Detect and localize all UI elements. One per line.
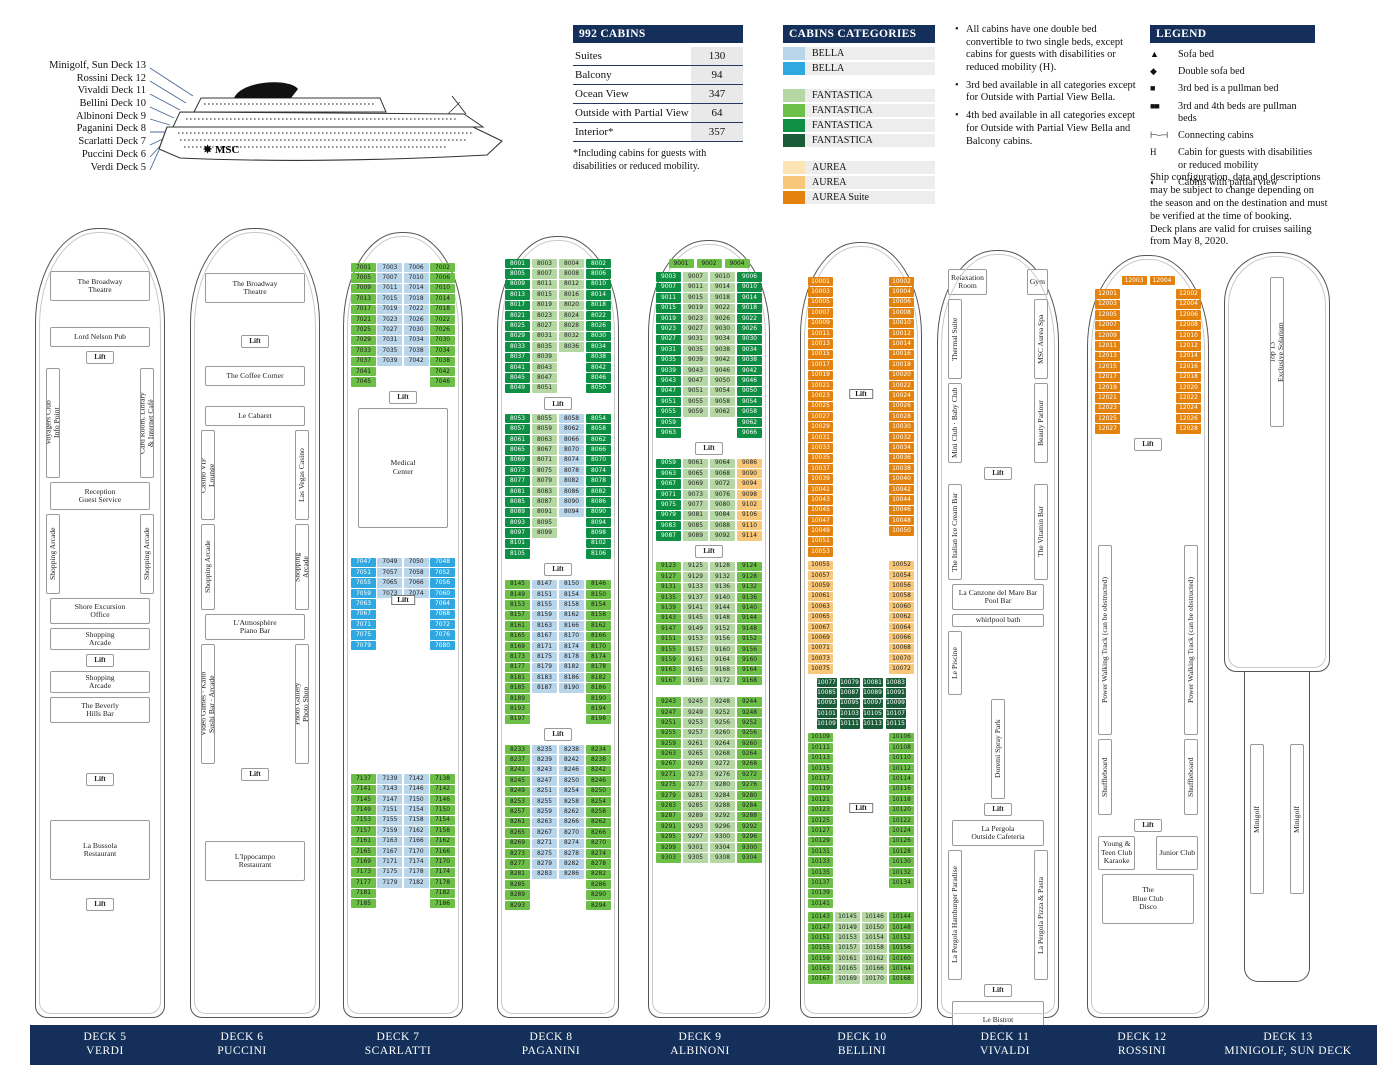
- cabin-cell: 9300: [710, 833, 735, 842]
- cabin-cell: 8057: [505, 424, 530, 433]
- cabin-cell: 9288: [737, 812, 762, 821]
- cabin-cell: 10122: [889, 816, 914, 825]
- cabin-cell: 8270: [559, 828, 584, 837]
- category-color-swatch: [783, 62, 805, 75]
- venue-pair: Mini Club · Baby ClubBeauty Parlour: [948, 383, 1048, 463]
- cabin-cell: 7146: [430, 795, 455, 804]
- cabin-cell: 8194: [586, 704, 611, 713]
- cabin-cell: 7171: [377, 857, 402, 866]
- footer-deck-name: VIVALDI: [980, 1045, 1030, 1059]
- cabin-cell: 12018: [1176, 373, 1201, 382]
- cabin-cell: 9281: [683, 791, 708, 800]
- cabin-block: 9243924792519255925992639267927192759279…: [656, 697, 762, 862]
- cabin-cell: 10139: [808, 889, 833, 898]
- cabin-cell: 10145: [835, 912, 860, 921]
- cabin-cell: 9264: [710, 739, 735, 748]
- cabin-cell: 9050: [737, 387, 762, 396]
- cabin-cell: 10110: [889, 754, 914, 763]
- cabin-cell: 12009: [1095, 331, 1120, 340]
- cabin-cell: 9249: [683, 708, 708, 717]
- cabin-column: 8238824282468250825482588262826682708274…: [559, 745, 584, 910]
- cabin-cell: 9102: [737, 500, 762, 509]
- cabin-cell: 7071: [351, 620, 376, 629]
- cabin-column: 8055805980638067807180758079808380878091…: [532, 414, 557, 558]
- cabin-cell: 10028: [889, 412, 914, 421]
- cabin-cell: 7170: [404, 847, 429, 856]
- cabin-cell: 8147: [532, 580, 557, 589]
- cabin-cell: 10058: [889, 592, 914, 601]
- cabin-cell: 9303: [656, 853, 681, 862]
- cabin-cell: 9291: [656, 822, 681, 831]
- cabin-cell: 10097: [863, 699, 883, 708]
- lift-label: Lift: [695, 442, 723, 455]
- cabin-cell: 7027: [377, 325, 402, 334]
- category-color-swatch: [783, 104, 805, 117]
- lift-label: Lift: [241, 768, 269, 781]
- cabin-cell: 7037: [351, 357, 376, 366]
- cabin-cell: 7030: [430, 336, 455, 345]
- cabin-cell: 8198: [586, 715, 611, 724]
- cabin-cell: 7179: [377, 878, 402, 887]
- ship-hull-outline: Top 13 Exclusive Solarium: [1224, 252, 1330, 672]
- cabin-cell: 8165: [505, 632, 530, 641]
- cabin-cell: 8161: [505, 621, 530, 630]
- cabin-cell: 10041: [808, 485, 833, 494]
- cabin-cell: 9125: [683, 562, 708, 571]
- ship-hull-outline: The Broadway TheatreLord Nelson PubLiftV…: [35, 228, 165, 1018]
- cabin-cell: 9058: [737, 407, 762, 416]
- cabin-cell: 9114: [737, 531, 762, 540]
- lift-label: Lift: [544, 563, 572, 576]
- cabin-cell: 10042: [889, 485, 914, 494]
- cabin-cell: 10160: [889, 954, 914, 963]
- cabin-cell: 8271: [532, 839, 557, 848]
- venue-label: La Bussola Restaurant: [50, 820, 150, 880]
- cabin-column: 8058806280668070807480788082808680908094: [559, 414, 584, 558]
- cabin-cell: 8159: [532, 611, 557, 620]
- cabin-cell: 8016: [559, 290, 584, 299]
- cabin-cell: 10045: [808, 506, 833, 515]
- cabin-cell: 8077: [505, 476, 530, 485]
- cabin-cell: 9247: [656, 708, 681, 717]
- cabin-cell: 9293: [683, 822, 708, 831]
- cabin-cell: 7018: [404, 294, 429, 303]
- cabin-cell: 10127: [808, 826, 833, 835]
- lift-label: Lift: [389, 391, 417, 404]
- cabin-cell: 8073: [505, 466, 530, 475]
- cabin-cell: 7064: [430, 599, 455, 608]
- venue-label: Shopping Arcade: [50, 628, 150, 650]
- cabin-cell: 12004: [1176, 300, 1201, 309]
- deck-plan-page: ✵ MSC Minigolf, Sun Deck 13Rossini Deck …: [0, 0, 1377, 1080]
- cabin-cell: 10072: [889, 664, 914, 673]
- cabin-cell: 7031: [377, 336, 402, 345]
- cabin-cell: 7021: [351, 315, 376, 324]
- ship-hull-outline: 1000110003100051000710009100111001310015…: [800, 242, 922, 1018]
- cabin-cell: 8086: [559, 487, 584, 496]
- legend-item: ▲Sofa bed: [1150, 49, 1315, 61]
- cabin-cell: 9255: [656, 729, 681, 738]
- cabin-column: 1005510057100591006110063100651006710069…: [808, 561, 833, 674]
- cabins-table-row: Balcony94: [573, 66, 743, 85]
- deck-plan-deck-11: Relaxation RoomGymThermal SuiteMSC Aurea…: [937, 250, 1059, 1018]
- venue-label: La Pergola Outside Cafeteria: [952, 820, 1044, 846]
- cabin-cell: 8262: [586, 818, 611, 827]
- cabin-cell: 10153: [835, 933, 860, 942]
- bullet-icon: •: [955, 80, 966, 105]
- cabin-column: 9125912991339137914191459149915391579161…: [683, 562, 708, 686]
- cabin-cell: 8289: [505, 890, 530, 899]
- cabin-column: 8001800580098013801780218025802980338037…: [505, 259, 530, 393]
- venue-label: Lord Nelson Pub: [50, 327, 150, 347]
- legend-text: 3rd and 4th beds are pullman beds: [1178, 101, 1315, 125]
- cabin-cell: 10126: [889, 837, 914, 846]
- cabin-cell: 9245: [683, 697, 708, 706]
- cabin-cell: 10026: [889, 402, 914, 411]
- cabin-cell: 12026: [1176, 414, 1201, 423]
- cabin-column: 90649068907290769080908490889092: [710, 459, 735, 541]
- venue-pair: The Italian Ice Cream BarThe Vitamin Bar: [948, 484, 1048, 580]
- cabin-column: 1000210004100061000810010100121001410016…: [889, 277, 914, 557]
- cabin-cell: 7181: [351, 889, 376, 898]
- cabin-column: 7001700570097013701770217025702970337037…: [351, 263, 376, 387]
- cabin-cell: 9128: [737, 572, 762, 581]
- cabin-cell: 8018: [586, 301, 611, 310]
- ship-deck-label: Puccini Deck 6: [28, 149, 146, 162]
- cabin-cell: 7066: [404, 578, 429, 587]
- lift-label: Lift: [391, 595, 415, 605]
- cabin-cell: 7029: [351, 336, 376, 345]
- cabin-cell: 9064: [710, 459, 735, 468]
- cabin-cell: 7058: [404, 568, 429, 577]
- cabin-cell: 10091: [886, 688, 906, 697]
- deck-plan-deck-12: 1200312004120011200312005120071200912011…: [1087, 255, 1209, 1018]
- cabin-cell: 10165: [835, 964, 860, 973]
- venue-label: L'Atmosphère Piano Bar: [205, 614, 305, 640]
- cabin-cell: 8246: [586, 776, 611, 785]
- cabin-cell: 10125: [808, 816, 833, 825]
- ship-deck-label: Albinoni Deck 9: [28, 111, 146, 124]
- sofa-bed-icon: ▲: [1150, 49, 1178, 61]
- cabin-cell: 9161: [683, 655, 708, 664]
- cabin-cell: 7041: [351, 367, 376, 376]
- venue-label: Card Room, Library & Internet Café: [140, 368, 154, 478]
- cabin-cell: 10166: [862, 964, 887, 973]
- cabin-cell: 9252: [737, 718, 762, 727]
- legend-text: Connecting cabins: [1178, 130, 1315, 142]
- cabin-cell: 10004: [889, 287, 914, 296]
- cabin-cell: 7019: [377, 305, 402, 314]
- cabin-cell: 8262: [559, 807, 584, 816]
- cabin-cell: 8081: [505, 487, 530, 496]
- cabin-cell: 10012: [889, 329, 914, 338]
- deck-plan-deck-10: 1000110003100051000710009100111001310015…: [800, 242, 922, 1018]
- legend-title: LEGEND: [1150, 25, 1315, 43]
- cabin-cell: 9135: [656, 593, 681, 602]
- cabin-cell: 9277: [683, 781, 708, 790]
- cabin-cell: 10087: [840, 688, 860, 697]
- venue-label: Medical Center: [358, 408, 448, 528]
- cabin-cell: 8036: [559, 342, 584, 351]
- venue-label: Shore Excursion Office: [50, 598, 150, 624]
- footer-deck-name: MINIGOLF, SUN DECK: [1224, 1045, 1351, 1059]
- cabin-cell: 10053: [808, 547, 833, 556]
- cabin-block: 1000110003100051000710009100111001310015…: [808, 277, 914, 557]
- pullman-bed-icon: ■: [1150, 83, 1178, 95]
- cabin-cell: 10146: [862, 912, 887, 921]
- cabin-cell: 8186: [586, 683, 611, 692]
- cabin-cell: 9046: [737, 376, 762, 385]
- cabin-cell: 9287: [656, 812, 681, 821]
- cabin-cell: 9259: [656, 739, 681, 748]
- cabin-cell: 8254: [559, 787, 584, 796]
- cabin-column: 704770517055705970637067707170757079: [351, 558, 376, 651]
- cabin-cell: 10116: [889, 785, 914, 794]
- cabin-cell: 8106: [586, 549, 611, 558]
- lift-label: Lift: [544, 728, 572, 741]
- cabin-cell: 7169: [351, 857, 376, 866]
- cabin-cell: 9131: [656, 583, 681, 592]
- cabin-cell: 9042: [737, 366, 762, 375]
- cabin-cell: 8275: [532, 849, 557, 858]
- cabin-cell: 7072: [430, 620, 455, 629]
- cabin-cell: 9152: [710, 624, 735, 633]
- cabin-cell: 7035: [377, 346, 402, 355]
- cabin-block: 1007710085100931010110109100791008710095…: [808, 678, 914, 729]
- cabin-cell: 12010: [1176, 331, 1201, 340]
- cabin-cell: 7080: [430, 641, 455, 650]
- cabin-cell: 10033: [808, 443, 833, 452]
- cabin-cell: 7142: [430, 785, 455, 794]
- cabin-cell: 10095: [840, 699, 860, 708]
- cabin-cell: 12007: [1095, 321, 1120, 330]
- cabin-cell: 9152: [737, 635, 762, 644]
- cabin-cell: 9276: [710, 770, 735, 779]
- venue-label: Shuffleboard: [1098, 739, 1112, 815]
- cabin-cell: 9248: [737, 708, 762, 717]
- cabin-cell: 9153: [683, 635, 708, 644]
- cabin-cell: 8074: [559, 456, 584, 465]
- ship-hull-outline: 9001900290049003900790119015901990239027…: [648, 240, 770, 1018]
- bed-notes: •All cabins have one double bed converti…: [955, 24, 1137, 153]
- cabin-column: 1010610108101101011210114101161011810120…: [889, 733, 914, 909]
- cabin-cell: 10017: [808, 360, 833, 369]
- cabin-cell: 10006: [889, 298, 914, 307]
- cabin-cell: 7026: [404, 315, 429, 324]
- cabin-cell: 8101: [505, 539, 530, 548]
- cabin-cell: 9002: [697, 259, 722, 268]
- cabin-cell: 8059: [532, 424, 557, 433]
- cabin-cell: 10057: [808, 571, 833, 580]
- footer-deck-label: DECK 12ROSSINI: [1117, 1031, 1166, 1058]
- cabin-cell: 9006: [737, 272, 762, 281]
- cabin-cell: 8182: [559, 663, 584, 672]
- cabin-cell: 9292: [710, 812, 735, 821]
- cabin-column: 12004: [1150, 276, 1175, 285]
- venue-label: Casino VIP Lounge: [201, 430, 215, 520]
- cabin-cell: 7162: [430, 837, 455, 846]
- cabin-cell: 8259: [532, 807, 557, 816]
- cabin-cell: 8082: [586, 487, 611, 496]
- cabin-cell: 7153: [351, 816, 376, 825]
- cabin-cell: 10170: [862, 975, 887, 984]
- cabin-cell: 8002: [586, 259, 611, 268]
- cabin-cell: 8153: [505, 600, 530, 609]
- cabin-cell: 9256: [710, 718, 735, 727]
- cabin-cell: 9014: [710, 283, 735, 292]
- cabin-cell: 9007: [656, 283, 681, 292]
- lift-label: Lift: [984, 803, 1012, 816]
- bed-note: •All cabins have one double bed converti…: [955, 24, 1137, 75]
- cabin-cell: 7030: [404, 325, 429, 334]
- footer-deck-label: DECK 9ALBINONI: [670, 1031, 730, 1058]
- cabin-cell: 7165: [351, 847, 376, 856]
- cabin-cell: 10018: [889, 360, 914, 369]
- cabin-cell: 9039: [656, 366, 681, 375]
- cabin-cell: 9147: [656, 624, 681, 633]
- cabin-cell: 8093: [505, 518, 530, 527]
- category-item: FANTASTICA: [783, 89, 935, 102]
- cabin-cell: 9260: [710, 729, 735, 738]
- legend-text: Sofa bed: [1178, 49, 1315, 61]
- cabin-cell: 9257: [683, 729, 708, 738]
- cabin-column: 9003900790119015901990239027903190359039…: [656, 272, 681, 437]
- cabin-cell: 7033: [351, 346, 376, 355]
- cabin-cell: 10029: [808, 422, 833, 431]
- cabin-cell: 10133: [808, 857, 833, 866]
- category-item: FANTASTICA: [783, 134, 935, 147]
- cabin-cell: 8146: [586, 580, 611, 589]
- cabin-cell: 9156: [710, 635, 735, 644]
- cabin-cell: 8155: [532, 600, 557, 609]
- cabin-cell: 8242: [559, 755, 584, 764]
- footer-deck-label: DECK 11VIVALDI: [980, 1031, 1030, 1058]
- category-item: BELLA: [783, 62, 935, 75]
- cabin-cell: 8030: [586, 332, 611, 341]
- cabin-cell: 12019: [1095, 383, 1120, 392]
- cabin-column: 7142714671507154715871627166717071747178…: [404, 774, 429, 908]
- cabin-cell: 8174: [586, 652, 611, 661]
- cabin-cell: 9136: [737, 593, 762, 602]
- cabin-cell: 8083: [532, 487, 557, 496]
- footer-deck-name: BELLINI: [837, 1045, 886, 1059]
- cabin-cell: 8181: [505, 673, 530, 682]
- legend-item: ⊢–⊣Connecting cabins: [1150, 130, 1315, 142]
- cabin-cell: 10154: [862, 933, 887, 942]
- cabin-cell: 10168: [889, 975, 914, 984]
- cabin-cell: 9046: [710, 366, 735, 375]
- cabin-cell: 8163: [532, 621, 557, 630]
- cabin-cell: 9305: [683, 853, 708, 862]
- cabin-block: 1010910111101131011510117101191012110123…: [808, 733, 914, 909]
- cabin-cell: 9011: [656, 293, 681, 302]
- cabin-cell: 7042: [430, 367, 455, 376]
- cabin-cell: 9027: [683, 324, 708, 333]
- cabin-cell: 8174: [559, 642, 584, 651]
- cabin-cell: 8095: [532, 518, 557, 527]
- cabin-cell: 8034: [586, 342, 611, 351]
- cabin-cell: 9123: [656, 562, 681, 571]
- legend-item: ■3rd bed is a pullman bed: [1150, 83, 1315, 95]
- cabin-cell: 10038: [889, 464, 914, 473]
- disclaimer-text: Ship configuration, data and description…: [1150, 172, 1328, 249]
- venue-label: Shopping Arcade: [46, 514, 60, 594]
- cabin-cell: 10040: [889, 474, 914, 483]
- ship-hull-outline: 7001700570097013701770217025702970337037…: [343, 232, 463, 1018]
- cabin-cell: 10167: [808, 975, 833, 984]
- footer-deck-number: DECK 7: [365, 1031, 431, 1045]
- cabin-cell: 8004: [559, 259, 584, 268]
- cabin-cell: 7022: [430, 315, 455, 324]
- cabin-cell: 9031: [683, 335, 708, 344]
- cabin-cell: 8283: [532, 870, 557, 879]
- cabin-cell: 8273: [505, 849, 530, 858]
- cabin-cell: 10066: [889, 633, 914, 642]
- cabin-cell: 9086: [737, 459, 762, 468]
- cabin-cell: 7009: [351, 284, 376, 293]
- cabin-cell: 8158: [559, 600, 584, 609]
- cabin-type-label: Interior*: [573, 123, 691, 141]
- venue-label: The Italian Ice Cream Bar: [948, 484, 962, 580]
- lift-label: Lift: [1134, 438, 1162, 451]
- cabin-cell: 10099: [886, 699, 906, 708]
- cabin-cell: 9034: [737, 345, 762, 354]
- cabin-cell: 7166: [404, 837, 429, 846]
- cabin-cell: 7059: [351, 589, 376, 598]
- cabin-cell: 8019: [532, 301, 557, 310]
- cabin-cell: 7051: [351, 568, 376, 577]
- venue-pair: ShuffleboardShuffleboard: [1098, 739, 1198, 815]
- cabin-cell: 12025: [1095, 414, 1120, 423]
- venue-label: Gym: [1027, 269, 1048, 295]
- cabin-cell: 10124: [889, 826, 914, 835]
- venue-label: Relaxation Room: [948, 269, 987, 295]
- cabin-cell: 8009: [505, 280, 530, 289]
- cabin-cell: 9083: [656, 521, 681, 530]
- cabin-cell: 8063: [532, 435, 557, 444]
- venue-label: Voyagers Club Info Point: [46, 368, 60, 478]
- cabin-cell: 10137: [808, 878, 833, 887]
- cabin-cell: 10010: [889, 319, 914, 328]
- venue-label: Shopping Arcade: [140, 514, 154, 594]
- cabin-cell: 9071: [656, 490, 681, 499]
- cabin-cell: 8045: [505, 373, 530, 382]
- cabin-cell: 8001: [505, 259, 530, 268]
- venue-label: Shopping Arcade: [295, 524, 309, 610]
- venue-pair: Voyagers Club Info PointCard Room, Libra…: [46, 368, 154, 478]
- cabin-column: 9128913291369140914491489152915691609164…: [710, 562, 735, 686]
- venue-label: Shuffleboard: [1184, 739, 1198, 815]
- footer-deck-number: DECK 10: [837, 1031, 886, 1045]
- cabin-cell: 9031: [656, 345, 681, 354]
- cabin-cell: 9275: [656, 781, 681, 790]
- cabin-cell: 9026: [710, 314, 735, 323]
- cabin-column: 10145101491015310157101611016510169: [835, 912, 860, 984]
- cabin-cell: 10077: [817, 678, 837, 687]
- cabin-cell: 7013: [351, 294, 376, 303]
- cabin-cell: 9136: [710, 583, 735, 592]
- cabin-cell: 8286: [586, 880, 611, 889]
- cabin-cell: 8078: [586, 476, 611, 485]
- cabin-cell: 8070: [586, 456, 611, 465]
- cabin-cell: 10008: [889, 308, 914, 317]
- cabin-cell: 10085: [817, 688, 837, 697]
- cabins-count-title: 992 CABINS: [573, 25, 743, 43]
- cabin-cell: 7038: [404, 346, 429, 355]
- cabin-column: 1008310091100991010710115: [886, 678, 906, 729]
- venue-label: Beauty Parlour: [1034, 383, 1048, 463]
- cabin-cell: 9127: [656, 572, 681, 581]
